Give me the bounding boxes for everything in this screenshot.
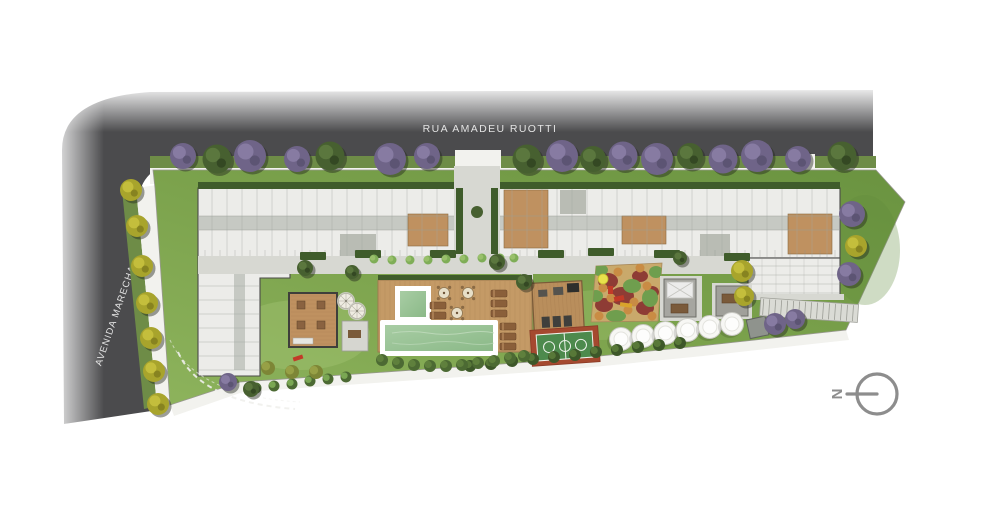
street-left-fade: [48, 92, 104, 432]
common-area-wood-4: [788, 214, 832, 254]
site-plan-image: RUA AMADEU RUOTTI AVENIDA MARECHAL TITO: [0, 0, 1000, 514]
playground: [589, 263, 663, 322]
outdoor-lounge: [342, 321, 368, 351]
main-walkway: [198, 256, 748, 274]
compass-north-label: N: [829, 389, 846, 400]
pool-deck: [378, 280, 532, 356]
fitness-deck: [532, 281, 584, 332]
left-wing-corridor: [234, 260, 245, 370]
gazebo-barbecue-1: [660, 276, 702, 321]
top-hedge-right: [500, 182, 840, 189]
paved-patch-2: [560, 190, 586, 214]
lap-pool-water: [385, 325, 493, 351]
street-label-top: RUA AMADEU RUOTTI: [423, 123, 558, 135]
lounge-table: [348, 330, 361, 338]
top-hedge-left: [198, 182, 454, 189]
site-plan-canvas: RUA AMADEU RUOTTI AVENIDA MARECHAL TITO: [0, 0, 1000, 514]
entrance-hedge-right: [491, 188, 498, 254]
gazebo-1-table: [671, 304, 688, 313]
party-pavilion: [289, 293, 337, 347]
entrance-hedge-left: [456, 188, 463, 254]
kids-pool-water: [400, 291, 426, 317]
sports-court: [530, 326, 600, 367]
entrance-tree: [471, 206, 483, 218]
deck-hedge: [378, 275, 532, 280]
common-area-wood-2: [504, 190, 548, 248]
